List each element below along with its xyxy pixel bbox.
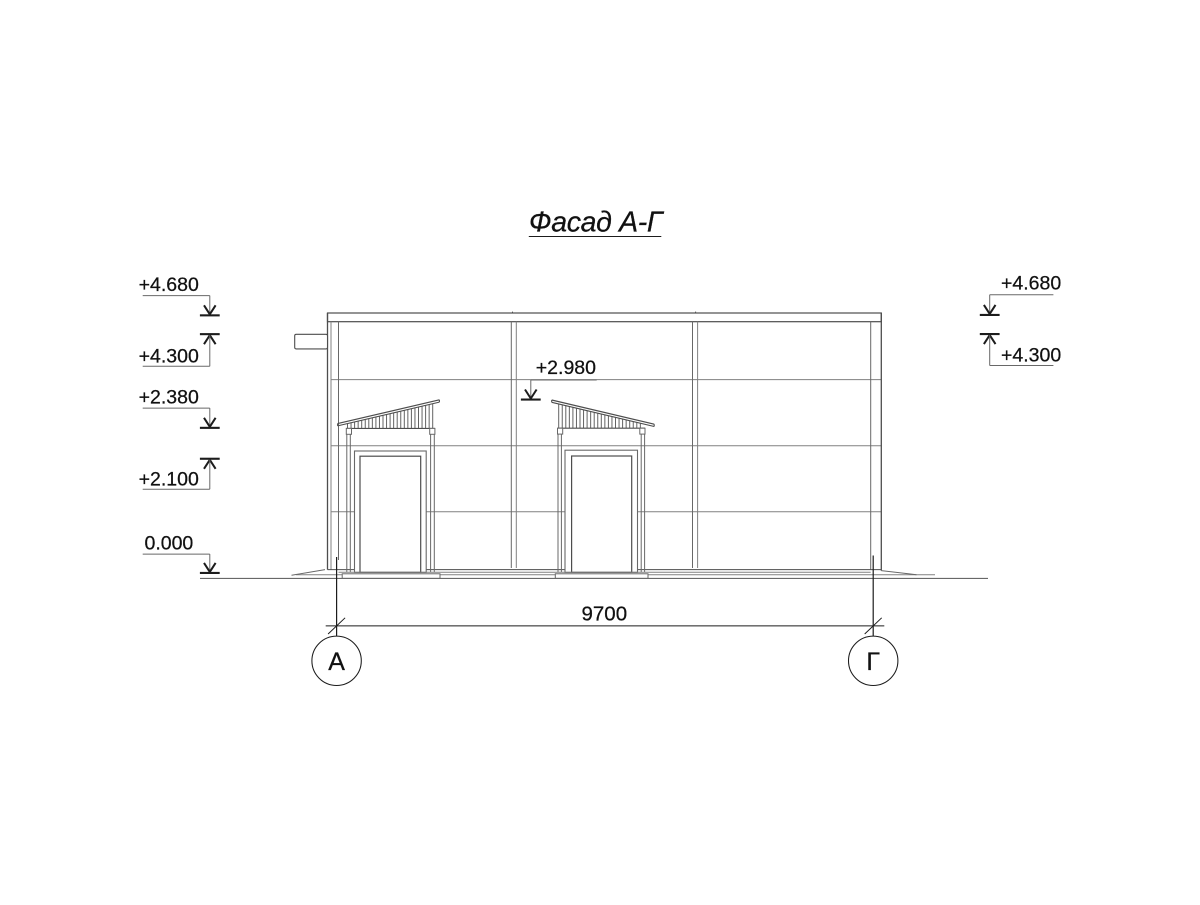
svg-text:Фасад А-Г: Фасад А-Г bbox=[529, 207, 665, 239]
svg-text:А: А bbox=[328, 648, 345, 676]
svg-text:+4.680: +4.680 bbox=[139, 274, 199, 296]
svg-text:+4.300: +4.300 bbox=[1001, 344, 1061, 366]
svg-text:+2.100: +2.100 bbox=[139, 469, 199, 491]
svg-text:+2.380: +2.380 bbox=[139, 387, 199, 409]
svg-text:+4.300: +4.300 bbox=[139, 346, 199, 368]
svg-text:+4.680: +4.680 bbox=[1001, 273, 1061, 295]
svg-text:+2.980: +2.980 bbox=[536, 357, 596, 379]
svg-text:9700: 9700 bbox=[581, 603, 627, 626]
svg-text:Г: Г bbox=[866, 648, 880, 676]
svg-text:0.000: 0.000 bbox=[144, 533, 193, 555]
